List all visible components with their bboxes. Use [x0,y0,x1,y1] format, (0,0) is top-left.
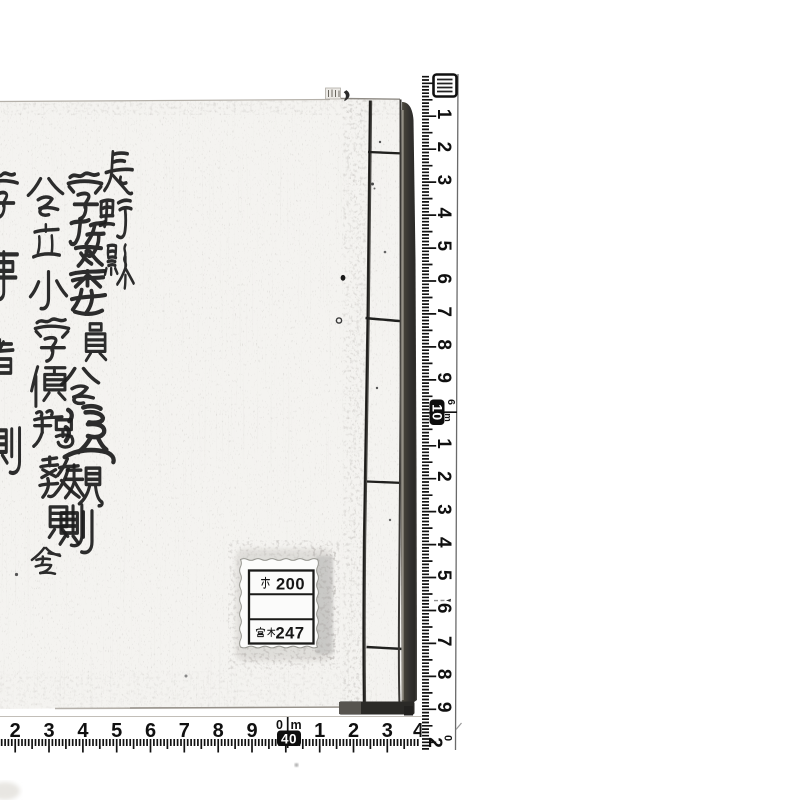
svg-text:3: 3 [433,504,454,515]
svg-text:5: 5 [111,720,122,742]
svg-text:1: 1 [433,109,454,120]
svg-text:3: 3 [382,720,393,742]
svg-text:4: 4 [433,537,454,548]
svg-text:8: 8 [213,720,224,742]
svg-text:5: 5 [433,570,454,581]
svg-text:6: 6 [433,273,454,284]
svg-text:200: 200 [276,576,305,594]
svg-text:7: 7 [179,720,190,742]
svg-text:4: 4 [433,208,454,219]
svg-text:2: 2 [348,720,359,742]
svg-text:2: 2 [433,142,454,153]
svg-text:3: 3 [433,175,454,186]
svg-text:3: 3 [43,720,54,742]
svg-text:4: 4 [77,720,89,742]
svg-text:6: 6 [445,399,457,405]
svg-text:5: 5 [433,241,454,252]
svg-text:m: m [290,718,301,732]
svg-text:0: 0 [276,718,283,732]
svg-text:8: 8 [433,669,454,680]
svg-text:247: 247 [275,625,304,643]
svg-text:1: 1 [433,438,454,449]
svg-text:9: 9 [433,702,454,713]
svg-text:2: 2 [433,471,454,482]
svg-text:6: 6 [433,603,454,614]
svg-text:9: 9 [433,372,454,383]
svg-text:m: m [442,413,453,421]
svg-text:1: 1 [314,720,325,742]
svg-text:7: 7 [433,636,454,647]
svg-text:8: 8 [433,339,454,350]
svg-text:7: 7 [433,306,454,317]
svg-text:0: 0 [442,735,454,741]
svg-text:2: 2 [10,720,21,742]
svg-text:6: 6 [145,720,156,742]
svg-text:40: 40 [281,732,297,747]
svg-text:9: 9 [246,720,257,742]
